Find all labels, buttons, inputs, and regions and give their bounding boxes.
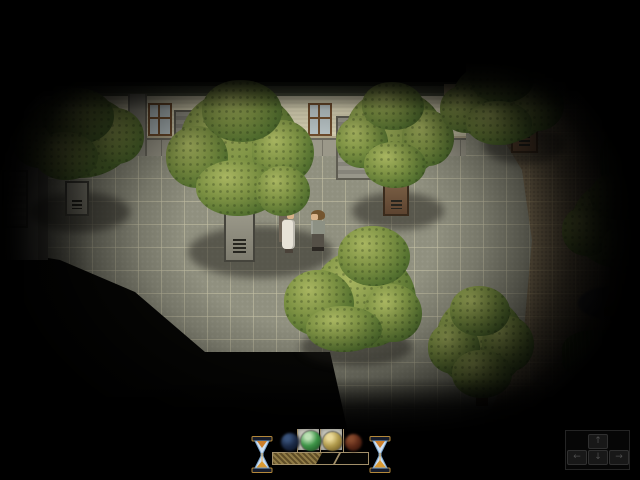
orb-blue [281,433,299,451]
tree-canopy-blob [362,82,424,130]
orb-gold [323,432,342,451]
tree-top-left [12,88,144,184]
tree-canopy-blob [364,142,426,188]
tree-canopy-blob [306,306,382,352]
tree-canopy-blob [590,172,640,220]
memory-progress-bar [272,452,369,465]
tree-center [166,80,314,220]
tree-mid-right [336,82,454,190]
tree-bottom-center [276,226,422,354]
hourglass-icon [369,436,391,473]
tree-canopy-blob [466,101,532,145]
arrow-key-down: ↓ [588,450,608,465]
tree-canopy-blob [256,166,310,216]
tree-canopy-blob [470,55,534,103]
tree-top-right [440,55,564,151]
bar-tick [343,429,344,452]
tree-canopy-blob [338,226,410,286]
orb-red [345,434,362,451]
tree-canopy-blob [202,80,282,142]
hud-bar: ↑←↓→ [0,425,640,480]
tree-canopy-blob [34,132,98,180]
tree-right-edge [562,172,640,276]
game-viewport[interactable]: ↑←↓→ [0,0,640,480]
hourglass-icon [251,436,273,473]
arrow-key-right: → [609,450,629,465]
tree-layer [0,0,640,480]
progress-fill [273,453,324,464]
arrow-key-left: ← [567,450,587,465]
arrow-key-up: ↑ [588,434,608,449]
tree-canopy-blob [452,350,512,398]
tree-canopy-blob [450,286,510,336]
tree-bottom-right [428,286,534,404]
orb-green [301,431,321,451]
